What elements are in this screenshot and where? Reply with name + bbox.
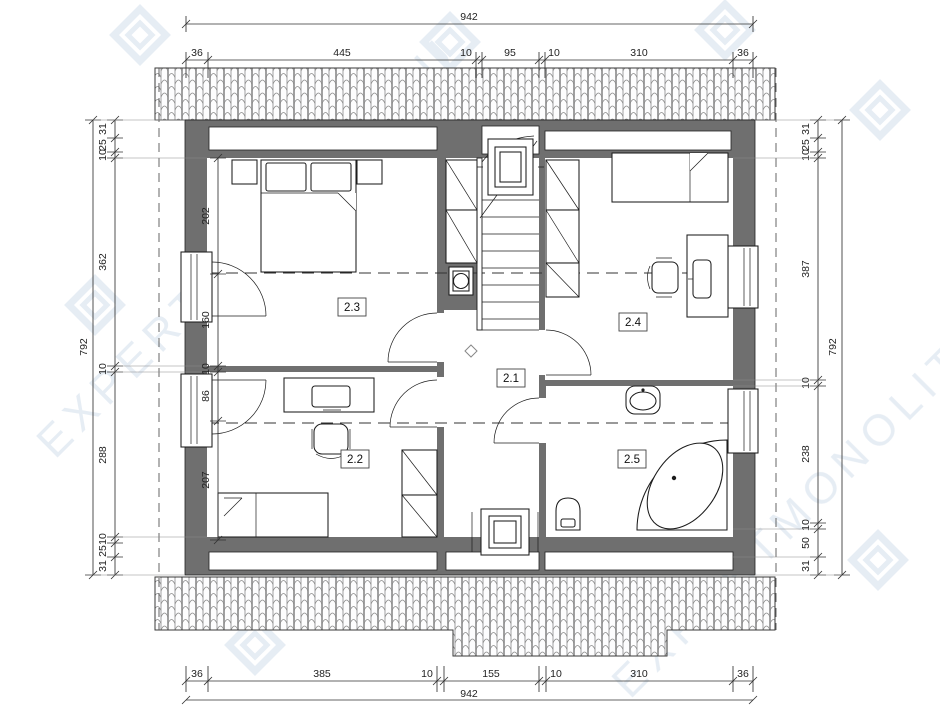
nightstand (357, 160, 382, 184)
dim-seg: 31 (97, 560, 109, 572)
dim-seg: 36 (191, 47, 203, 59)
dim-seg: 31 (800, 123, 812, 135)
dim-seg: 310 (630, 668, 648, 680)
room-label: 2.2 (347, 454, 363, 466)
nightstand (232, 160, 257, 184)
monitor-icon (312, 386, 350, 407)
floor-plan-page: EXPERTMONOLIT.RU EXPERTMONOLIT.RU EXPERT… (0, 0, 940, 710)
dim-seg: 95 (504, 47, 516, 59)
dim-seg: 25 (800, 139, 812, 151)
dim-seg: 310 (630, 47, 648, 59)
dim-seg: 202 (200, 207, 212, 225)
dim-seg: 387 (800, 260, 812, 278)
room-label: 2.4 (625, 317, 642, 329)
roof-tiles-top (155, 68, 775, 120)
dim-seg: 10 (548, 47, 560, 59)
dim-total: 792 (78, 338, 90, 356)
dim-seg: 10 (97, 363, 109, 375)
room-label: 2.3 (344, 302, 360, 314)
wardrobe (402, 450, 437, 537)
dim-total: 942 (460, 11, 478, 23)
dim-seg: 10 (800, 149, 812, 161)
dim-seg: 288 (97, 446, 109, 464)
dim-seg: 10 (97, 149, 109, 161)
dim-seg: 10 (200, 363, 212, 375)
dim-seg: 238 (800, 445, 812, 463)
desk (687, 235, 728, 317)
dim-seg: 362 (97, 253, 109, 271)
dim-seg: 36 (737, 47, 749, 59)
desk (284, 378, 374, 412)
dim-seg: 25 (97, 139, 109, 151)
dim-seg: 445 (333, 47, 351, 59)
dim-seg: 10 (97, 533, 109, 545)
dim-seg: 10 (460, 47, 472, 59)
toilet (556, 498, 580, 530)
dim-seg: 10 (550, 668, 562, 680)
floor-plan-canvas: EXPERTMONOLIT.RU EXPERTMONOLIT.RU EXPERT… (0, 0, 940, 710)
dim-seg: 10 (421, 668, 433, 680)
dim-seg: 36 (191, 668, 203, 680)
dim-seg: 155 (482, 668, 500, 680)
dim-total: 942 (460, 688, 478, 700)
dim-seg: 31 (97, 123, 109, 135)
dim-seg: 10 (800, 377, 812, 389)
single-bed (218, 493, 328, 537)
dim-seg: 207 (200, 471, 212, 489)
double-bed (261, 160, 356, 272)
window-se (728, 389, 758, 453)
room-label: 2.5 (624, 454, 640, 466)
single-bed (612, 153, 728, 202)
chimney-icon (449, 267, 473, 295)
dim-seg: 25 (97, 545, 109, 557)
dim-seg: 160 (200, 311, 212, 329)
roof-window-icon (472, 509, 538, 555)
room-label: 2.1 (503, 373, 519, 385)
dim-seg: 385 (313, 668, 331, 680)
dim-seg: 50 (800, 537, 812, 549)
dim-seg: 36 (737, 668, 749, 680)
monitor-icon (693, 260, 711, 298)
sink (626, 386, 660, 414)
window-ne (728, 246, 758, 308)
dim-seg: 31 (800, 560, 812, 572)
dim-total: 792 (827, 338, 839, 356)
dim-seg: 86 (200, 390, 212, 402)
